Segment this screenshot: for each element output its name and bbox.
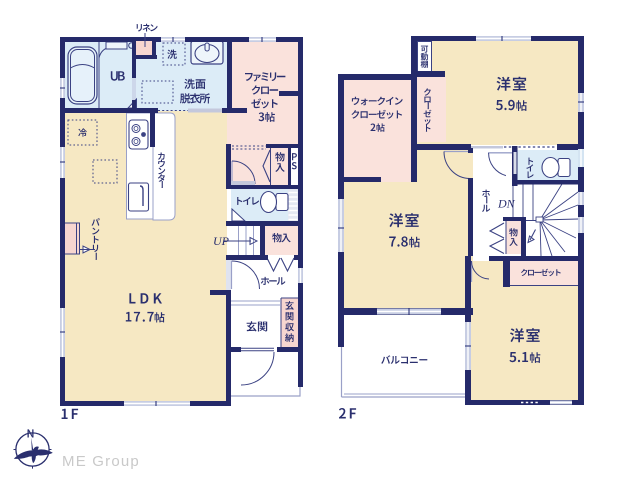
svg-text:DN: DN xyxy=(497,197,516,211)
svg-text:UP: UP xyxy=(213,234,230,248)
svg-text:ME Group: ME Group xyxy=(62,453,140,470)
